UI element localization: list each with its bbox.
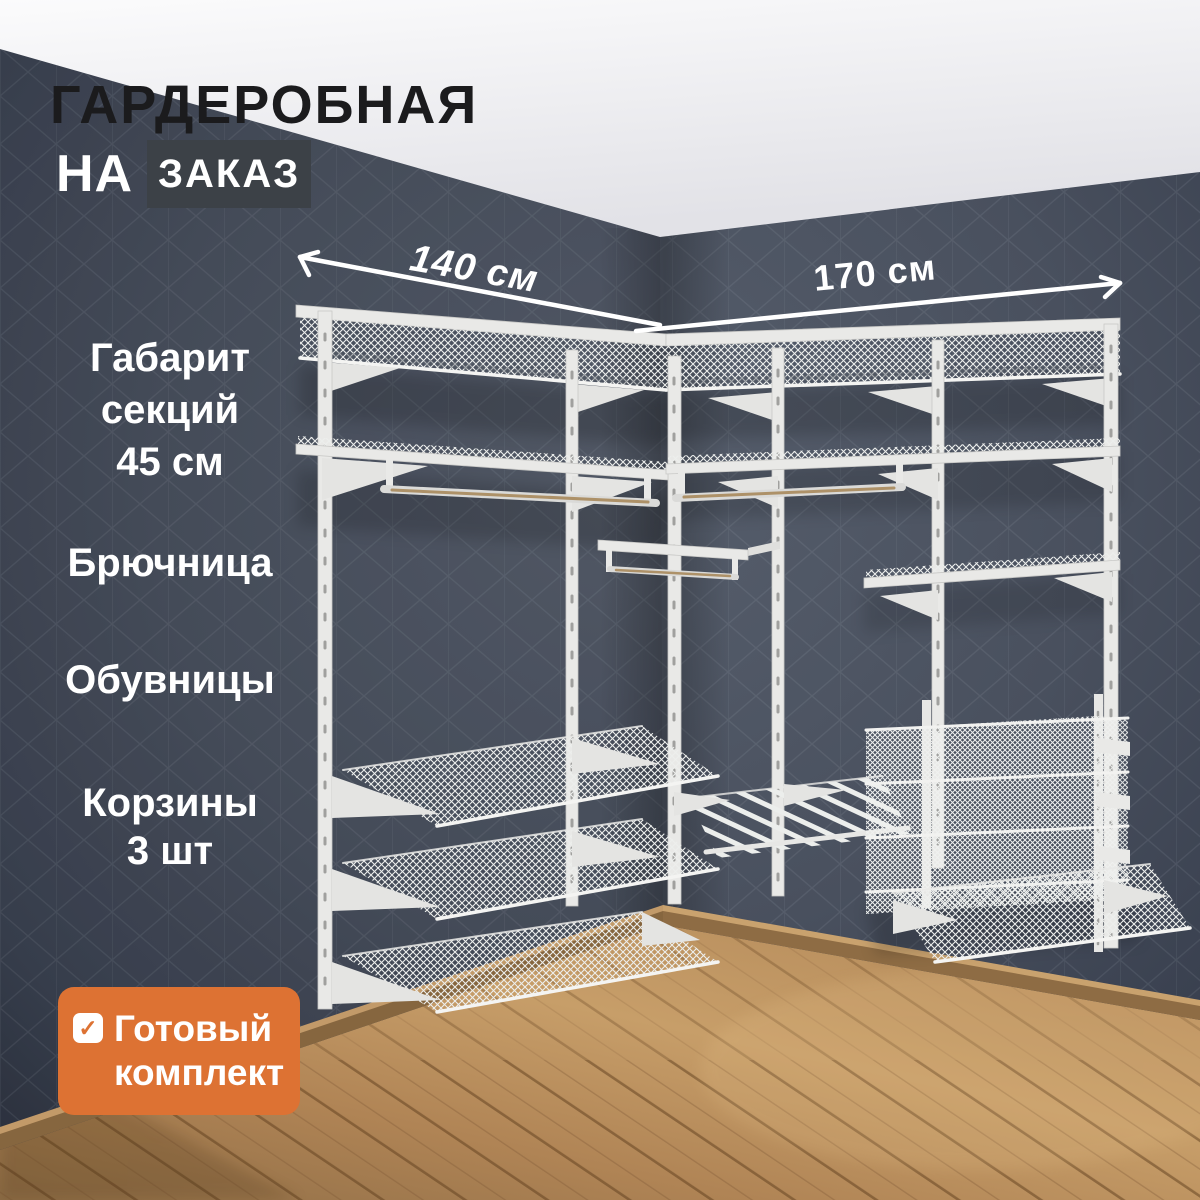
check-square-icon: ✓ xyxy=(73,1013,103,1043)
feature-section-size: Габарит секций 45 см xyxy=(0,332,340,488)
feature-baskets: Корзины 3 шт xyxy=(0,779,340,875)
page-title: ГАРДЕРОБНАЯ xyxy=(50,74,478,136)
subtitle-prefix: НА xyxy=(56,144,133,204)
feature-line: Брючница xyxy=(0,537,340,589)
feature-line: Габарит xyxy=(0,332,340,384)
subtitle: НА ЗАКАЗ xyxy=(56,140,311,208)
ready-kit-badge: ✓ Готовый комплект xyxy=(58,987,300,1115)
feature-line: секций xyxy=(0,384,340,436)
feature-line: Корзины xyxy=(0,779,340,827)
feature-pants-rack: Брючница xyxy=(0,537,340,589)
feature-line: Обувницы xyxy=(0,654,340,706)
badge-line-2: комплект xyxy=(114,1051,290,1095)
product-banner: 140 см 170 см ГАРДЕРОБНАЯ НА ЗАКАЗ Габар… xyxy=(0,0,1200,1200)
feature-line: 3 шт xyxy=(0,827,340,875)
badge-line-1: Готовый xyxy=(114,1007,290,1051)
subtitle-badge: ЗАКАЗ xyxy=(147,140,311,208)
feature-line: 45 см xyxy=(0,436,340,488)
feature-shoe-racks: Обувницы xyxy=(0,654,340,706)
